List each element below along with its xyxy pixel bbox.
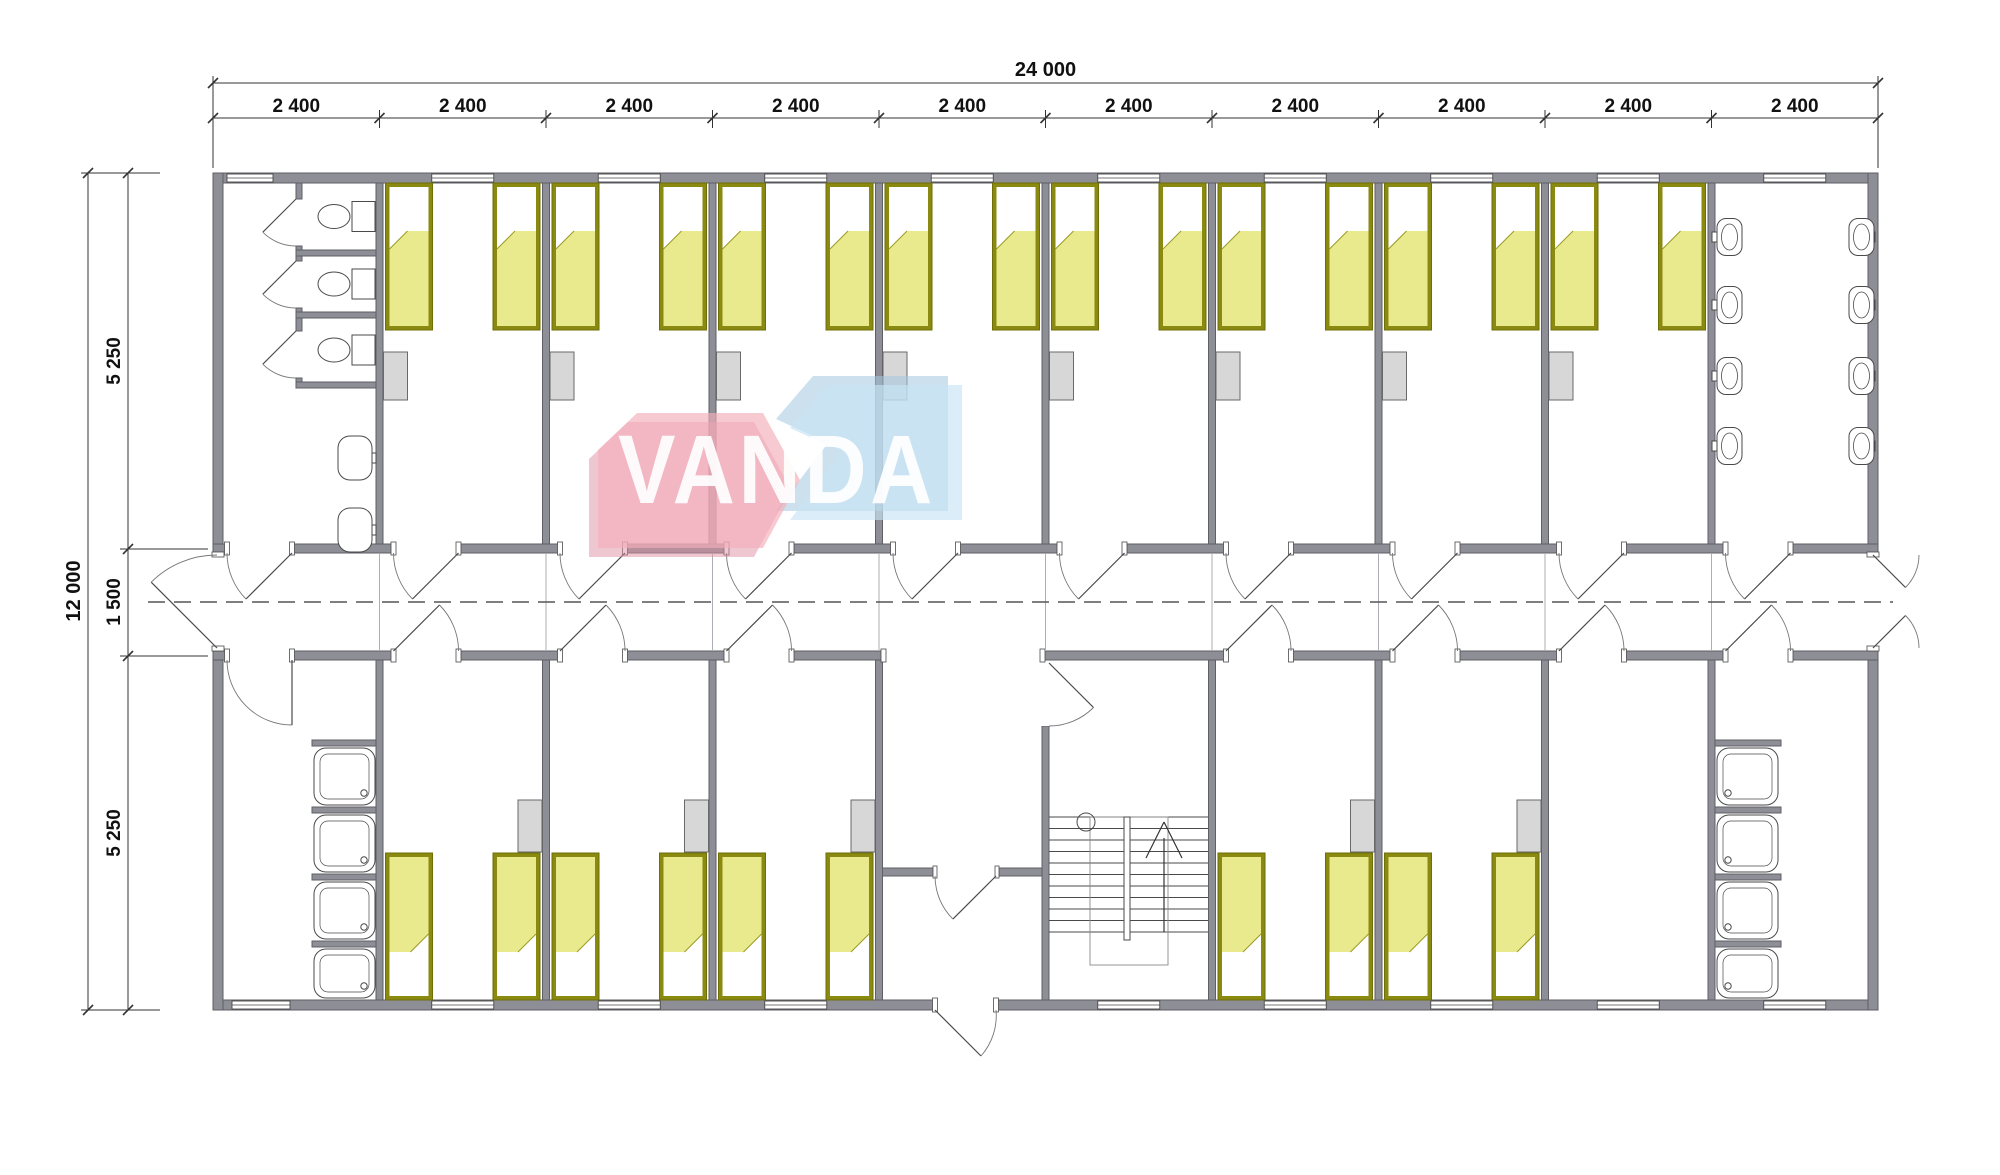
dim-label-module-width: 2 400 <box>1105 96 1153 117</box>
bed-blanket <box>1663 231 1702 326</box>
opening <box>1060 543 1125 554</box>
partition-wall-top <box>376 183 383 544</box>
bed-blanket <box>497 231 536 326</box>
wc-stall-wall <box>296 308 302 331</box>
toilet-bowl <box>318 338 350 362</box>
bed-pillow <box>723 952 762 996</box>
bed-blanket <box>997 231 1036 326</box>
door-jamb <box>212 646 224 651</box>
opening <box>1226 650 1291 661</box>
shower-stub-wall <box>312 740 376 746</box>
toilet-tank <box>352 202 375 232</box>
opening <box>727 650 792 661</box>
partition-wall-top <box>1375 183 1382 544</box>
dim-label-module-width: 2 400 <box>772 96 820 117</box>
corridor-wall-top <box>213 544 1878 553</box>
vestibule-wall <box>883 868 936 876</box>
toilet-bowl <box>318 272 350 296</box>
bed-pillow <box>390 187 429 231</box>
shower-stub-wall <box>1715 941 1781 947</box>
bed-pillow <box>1389 187 1428 231</box>
dim-label-total-width: 24 000 <box>1015 59 1076 81</box>
door-jamb <box>933 998 938 1012</box>
opening <box>1226 543 1291 554</box>
vestibule-wall <box>996 868 1042 876</box>
opening <box>935 999 996 1011</box>
partition-wall-top <box>1542 183 1549 544</box>
bed-blanket <box>1389 857 1428 952</box>
toilet-tank <box>352 335 375 365</box>
bed-pillow <box>1163 187 1202 231</box>
bed-pillow <box>1663 187 1702 231</box>
wardrobe <box>1216 352 1240 400</box>
floor-plan-page: 24 0002 4002 4002 4002 4002 4002 4002 40… <box>0 0 2000 1175</box>
partition-wall-bottom <box>1375 660 1382 1000</box>
shower-stub-wall <box>1715 740 1781 746</box>
dim-label-module-width: 2 400 <box>439 96 487 117</box>
bed-blanket <box>664 231 703 326</box>
bed-pillow <box>497 187 536 231</box>
partition-wall-bottom <box>1708 660 1715 1000</box>
wardrobe <box>384 352 408 400</box>
bed-blanket <box>1389 231 1428 326</box>
bed-pillow <box>1330 187 1369 231</box>
bed-blanket <box>1056 231 1095 326</box>
opening <box>394 650 459 661</box>
shower-stub-wall <box>312 807 376 813</box>
dim-label-segment-height: 5 250 <box>104 337 125 385</box>
bed-blanket <box>830 857 869 952</box>
bed-pillow <box>1330 952 1369 996</box>
dim-label-module-width: 2 400 <box>272 96 320 117</box>
shower-tray <box>314 882 375 939</box>
door-jamb <box>212 552 224 557</box>
opening <box>883 650 1042 661</box>
wardrobe <box>550 352 574 400</box>
opening <box>227 650 292 661</box>
bed-blanket <box>723 857 762 952</box>
dim-label-module-width: 2 400 <box>605 96 653 117</box>
dim-label-segment-height: 1 500 <box>104 578 125 626</box>
opening <box>560 650 625 661</box>
bed-blanket <box>390 857 429 952</box>
opening <box>1726 650 1791 661</box>
shower-tray <box>1717 815 1778 872</box>
bed-pillow <box>1222 952 1261 996</box>
dim-label-segment-height: 5 250 <box>104 809 125 857</box>
bed-blanket <box>1555 231 1594 326</box>
bed-blanket <box>723 231 762 326</box>
bed-pillow <box>664 187 703 231</box>
shower-stub-wall <box>312 874 376 880</box>
logo-text: VANDA <box>618 415 936 524</box>
door-jamb <box>994 998 999 1012</box>
opening <box>1041 663 1050 726</box>
bed-blanket <box>556 857 595 952</box>
wc-stall-wall <box>296 382 376 388</box>
door-jamb <box>1867 552 1879 557</box>
bed-pillow <box>1555 187 1594 231</box>
partition-wall-top <box>1209 183 1216 544</box>
dim-label-module-width: 2 400 <box>1771 96 1819 117</box>
bed-pillow <box>664 952 703 996</box>
bed-pillow <box>497 952 536 996</box>
bed-blanket <box>830 231 869 326</box>
partition-wall-bottom <box>709 660 716 1000</box>
dim-label-total-height: 12 000 <box>63 560 85 621</box>
bed-blanket <box>889 231 928 326</box>
bed-pillow <box>1389 952 1428 996</box>
sink-basin <box>338 508 372 552</box>
shower-tray <box>314 748 375 805</box>
shower-tray <box>1717 882 1778 939</box>
bed-blanket <box>497 857 536 952</box>
wc-stall-wall <box>296 183 302 199</box>
door-jamb <box>1040 649 1045 662</box>
opening <box>893 543 958 554</box>
partition-wall-top <box>543 183 550 544</box>
wardrobe <box>518 800 542 852</box>
wardrobe <box>717 352 741 400</box>
wardrobe <box>1351 800 1375 852</box>
partition-wall-bottom <box>1542 660 1549 1000</box>
bed-blanket <box>1330 231 1369 326</box>
bed-pillow <box>889 187 928 231</box>
wc-stall-wall <box>296 250 376 256</box>
door-jamb <box>881 649 886 662</box>
dim-label-module-width: 2 400 <box>1438 96 1486 117</box>
bed-blanket <box>1163 231 1202 326</box>
shower-stub-wall <box>312 941 376 947</box>
dim-label-module-width: 2 400 <box>1271 96 1319 117</box>
partition-wall-bottom <box>376 660 383 1000</box>
toilet-bowl <box>318 205 350 229</box>
partition-wall-bottom <box>543 660 550 1000</box>
bed-pillow <box>830 187 869 231</box>
wardrobe <box>1383 352 1407 400</box>
corridor-wall-bottom <box>213 651 1878 660</box>
bed-pillow <box>830 952 869 996</box>
toilet-tank <box>352 269 375 299</box>
partition-wall-bottom <box>1209 660 1216 1000</box>
opening <box>1726 543 1791 554</box>
partition-wall-bottom <box>876 660 883 1000</box>
dim-label-module-width: 2 400 <box>938 96 986 117</box>
bed-blanket <box>1496 857 1535 952</box>
bed-blanket <box>556 231 595 326</box>
bed-blanket <box>1496 231 1535 326</box>
wc-stall-wall <box>296 312 376 318</box>
bed-blanket <box>664 857 703 952</box>
wardrobe <box>1549 352 1573 400</box>
opening <box>935 867 996 877</box>
opening <box>1559 650 1624 661</box>
opening <box>1393 650 1458 661</box>
opening <box>227 543 292 554</box>
bed-pillow <box>1496 952 1535 996</box>
wardrobe <box>851 800 875 852</box>
bed-blanket <box>1222 231 1261 326</box>
shower-tray <box>314 815 375 872</box>
bed-pillow <box>1222 187 1261 231</box>
bed-pillow <box>1056 187 1095 231</box>
floor-plan: 24 0002 4002 4002 4002 4002 4002 4002 40… <box>0 0 2000 1175</box>
bed-pillow <box>556 187 595 231</box>
bed-pillow <box>1496 187 1535 231</box>
wardrobe <box>1517 800 1541 852</box>
shower-stub-wall <box>1715 874 1781 880</box>
wardrobe <box>1050 352 1074 400</box>
opening <box>1393 543 1458 554</box>
door-jamb <box>1867 646 1879 651</box>
bed-blanket <box>1222 857 1261 952</box>
bed-pillow <box>997 187 1036 231</box>
partition-wall-top <box>1042 183 1049 544</box>
partition-wall-bottom <box>1042 726 1049 1000</box>
dim-label-module-width: 2 400 <box>1604 96 1652 117</box>
bed-pillow <box>723 187 762 231</box>
bed-blanket <box>1330 857 1369 952</box>
shower-stub-wall <box>1715 807 1781 813</box>
bed-blanket <box>390 231 429 326</box>
sink-basin <box>338 436 372 480</box>
bed-pillow <box>390 952 429 996</box>
opening <box>394 543 459 554</box>
bed-pillow <box>556 952 595 996</box>
opening <box>1559 543 1624 554</box>
wardrobe <box>685 800 709 852</box>
stair-rail <box>1124 817 1130 940</box>
shower-tray <box>1717 748 1778 805</box>
